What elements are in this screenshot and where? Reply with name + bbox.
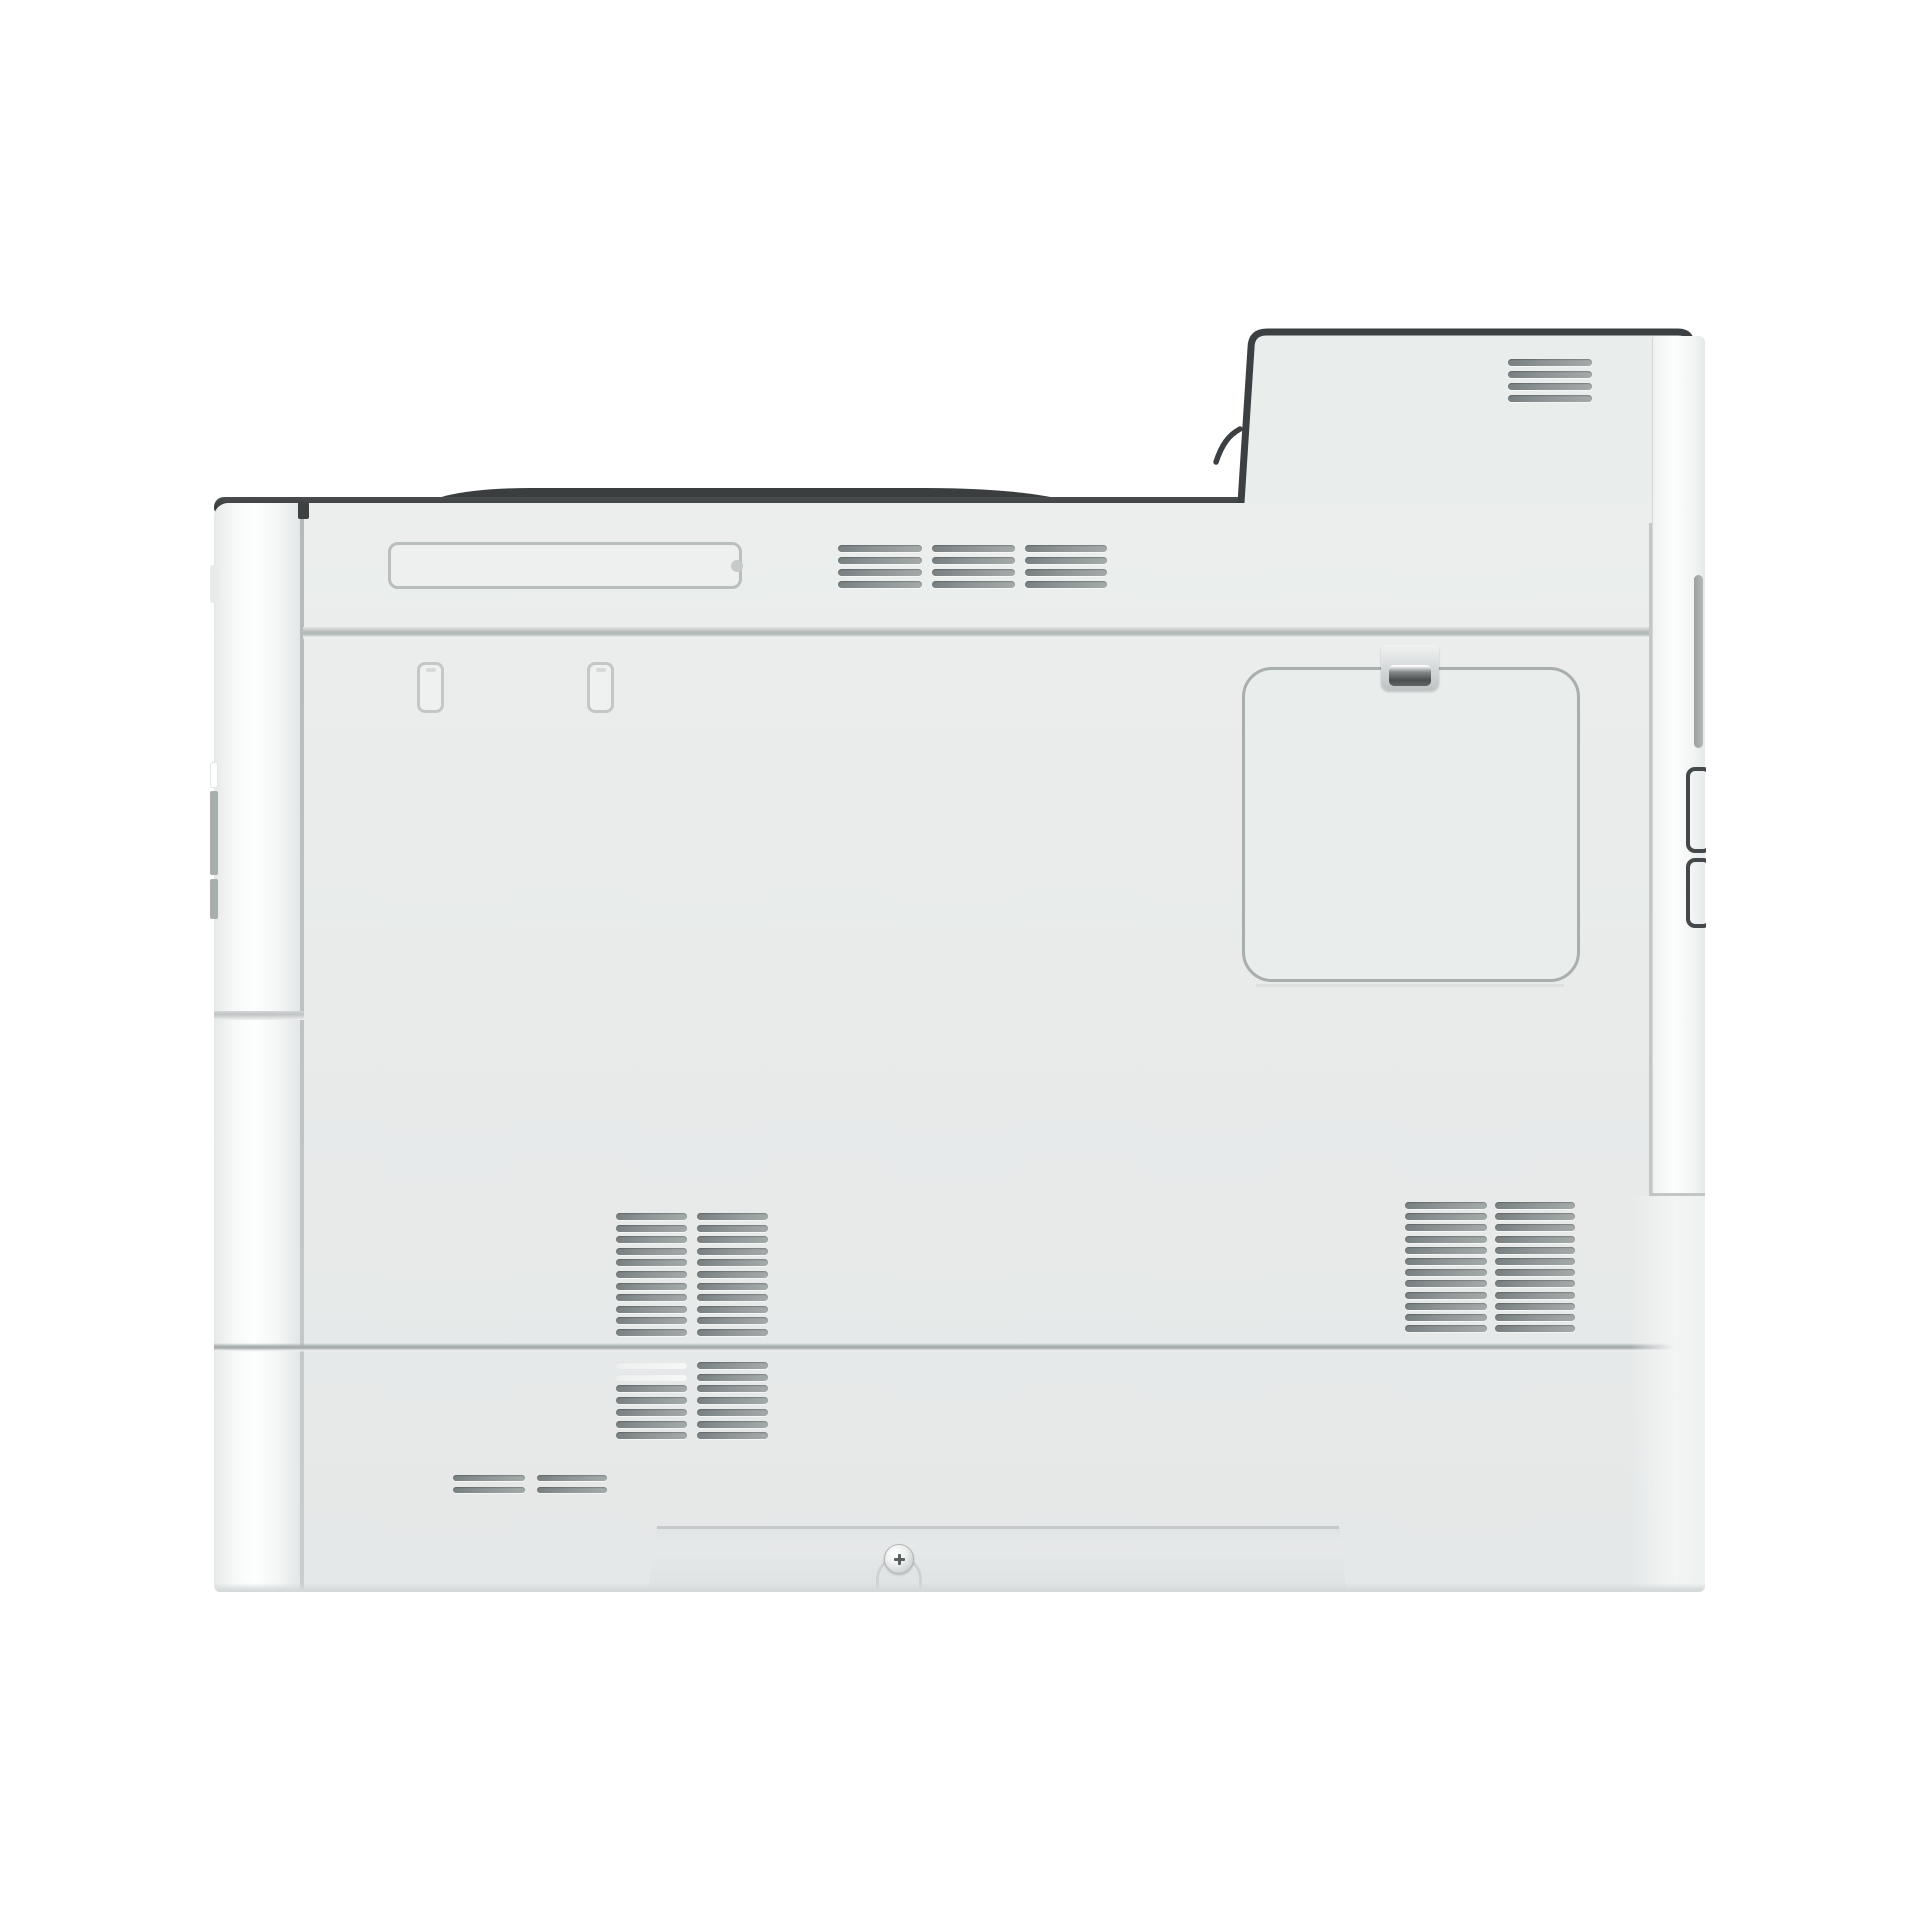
vent-slat [1405, 1236, 1487, 1243]
vent-slat [1495, 1224, 1575, 1231]
vent-slat [616, 1329, 687, 1336]
vent-slat [697, 1306, 768, 1313]
vent-slat [1405, 1280, 1487, 1287]
vent-slat [1405, 1224, 1487, 1231]
vent-slat [697, 1225, 768, 1232]
vent-slat [697, 1294, 768, 1301]
front-edge-tab-2 [210, 762, 218, 788]
vent-slat [1405, 1269, 1487, 1276]
vent-slat [1495, 1258, 1575, 1265]
vent-slat [616, 1236, 687, 1243]
vent-slat [1405, 1202, 1487, 1209]
vent-slat [453, 1475, 525, 1481]
vent-slat [697, 1374, 768, 1381]
panel-slot-tick [426, 668, 436, 672]
vent-slat [1025, 581, 1107, 588]
vent-slat [697, 1409, 768, 1416]
vent-slat [616, 1283, 687, 1290]
swoosh-line [1216, 429, 1240, 462]
vent-slat [932, 569, 1015, 576]
rear-lower-highlight [1630, 1196, 1705, 1588]
vent-slat [1508, 383, 1592, 390]
vent-slat [932, 545, 1015, 552]
vent-slat [1508, 359, 1592, 366]
vent-slat [1405, 1325, 1487, 1332]
vent-slat [1508, 371, 1592, 378]
front-edge-latch-1 [210, 791, 218, 875]
vent-slat [1405, 1258, 1487, 1265]
vent-slat [838, 545, 922, 552]
panel-slot-1 [417, 662, 444, 713]
vent-slat [453, 1487, 525, 1493]
vent-slat [1495, 1269, 1575, 1276]
vent-slat [616, 1362, 687, 1369]
front-edge-strip [214, 503, 304, 1592]
carry-handle-slot [388, 542, 742, 589]
vent-slat [932, 581, 1015, 588]
vent-slat [616, 1306, 687, 1313]
vent-slat [838, 581, 922, 588]
vent-slat [616, 1259, 687, 1266]
vent-slat [697, 1397, 768, 1404]
rear-corner-protrusion [1130, 318, 1710, 518]
vent-slat [1405, 1314, 1487, 1321]
base-screw [884, 1544, 914, 1574]
toner-access-door [1242, 667, 1580, 982]
vent-slat [616, 1317, 687, 1324]
base-recess-edge [657, 1526, 1339, 1529]
vent-slat [616, 1385, 687, 1392]
vent-slat [537, 1475, 607, 1481]
vent-slat [1025, 545, 1107, 552]
vent-slat [1405, 1213, 1487, 1220]
panel-slot-tick [596, 668, 606, 672]
rear-edge-tab [1694, 575, 1703, 748]
panel-seam-upper [303, 627, 1652, 640]
interface-slot-cover-1 [1686, 767, 1706, 853]
front-strip-seam-vertical [300, 503, 304, 1592]
bottom-edge-shadow [214, 1583, 1705, 1592]
vent-slat [1405, 1292, 1487, 1299]
vent-slat [697, 1362, 768, 1369]
vent-slat [1495, 1213, 1575, 1220]
vent-slat [616, 1248, 687, 1255]
vent-slat [1495, 1202, 1575, 1209]
vent-slat [697, 1236, 768, 1243]
vent-slat [932, 557, 1015, 564]
vent-slat [838, 569, 922, 576]
vent-slat [1495, 1325, 1575, 1332]
vent-slat [1495, 1303, 1575, 1310]
vent-slat [697, 1385, 768, 1392]
vent-slat [697, 1317, 768, 1324]
vent-slat [1508, 395, 1592, 402]
vent-slat [1495, 1314, 1575, 1321]
vent-slat [537, 1487, 607, 1493]
vent-slat [1495, 1236, 1575, 1243]
screw-cross [898, 1554, 901, 1565]
panel-seam-lower [214, 1343, 1704, 1352]
vent-slat [616, 1213, 687, 1220]
vent-slat [1405, 1247, 1487, 1254]
vent-slat [1025, 569, 1107, 576]
rear-edge-detail [1640, 520, 1706, 1220]
vent-slat [697, 1283, 768, 1290]
handle-slot-notch [731, 560, 743, 572]
vent-slat [616, 1225, 687, 1232]
vent-slat [616, 1421, 687, 1428]
vent-slat [697, 1421, 768, 1428]
door-bottom-shadow [1256, 984, 1564, 987]
vent-slat [616, 1294, 687, 1301]
front-edge-tab-1 [210, 565, 218, 603]
vent-slat [1495, 1280, 1575, 1287]
vent-slat [616, 1397, 687, 1404]
vent-slat [697, 1271, 768, 1278]
vent-slat [616, 1432, 687, 1439]
vent-slat [697, 1248, 768, 1255]
printer-side-view [0, 0, 1920, 1920]
vent-slat [616, 1374, 687, 1381]
vent-slat [697, 1329, 768, 1336]
panel-slot-2 [587, 662, 614, 713]
trim-notch [298, 502, 309, 519]
front-edge-latch-2 [210, 879, 218, 919]
vent-slat [1025, 557, 1107, 564]
vent-slat [697, 1259, 768, 1266]
vent-slat [1495, 1247, 1575, 1254]
vent-slat [1495, 1292, 1575, 1299]
vent-slat [697, 1213, 768, 1220]
vent-slat [697, 1432, 768, 1439]
vent-slat [616, 1271, 687, 1278]
interface-slot-cover-2 [1686, 858, 1706, 928]
front-strip-seam [214, 1011, 304, 1020]
vent-slat [838, 557, 922, 564]
vent-slat [616, 1409, 687, 1416]
vent-slat [1405, 1303, 1487, 1310]
door-latch-recess [1389, 665, 1431, 686]
